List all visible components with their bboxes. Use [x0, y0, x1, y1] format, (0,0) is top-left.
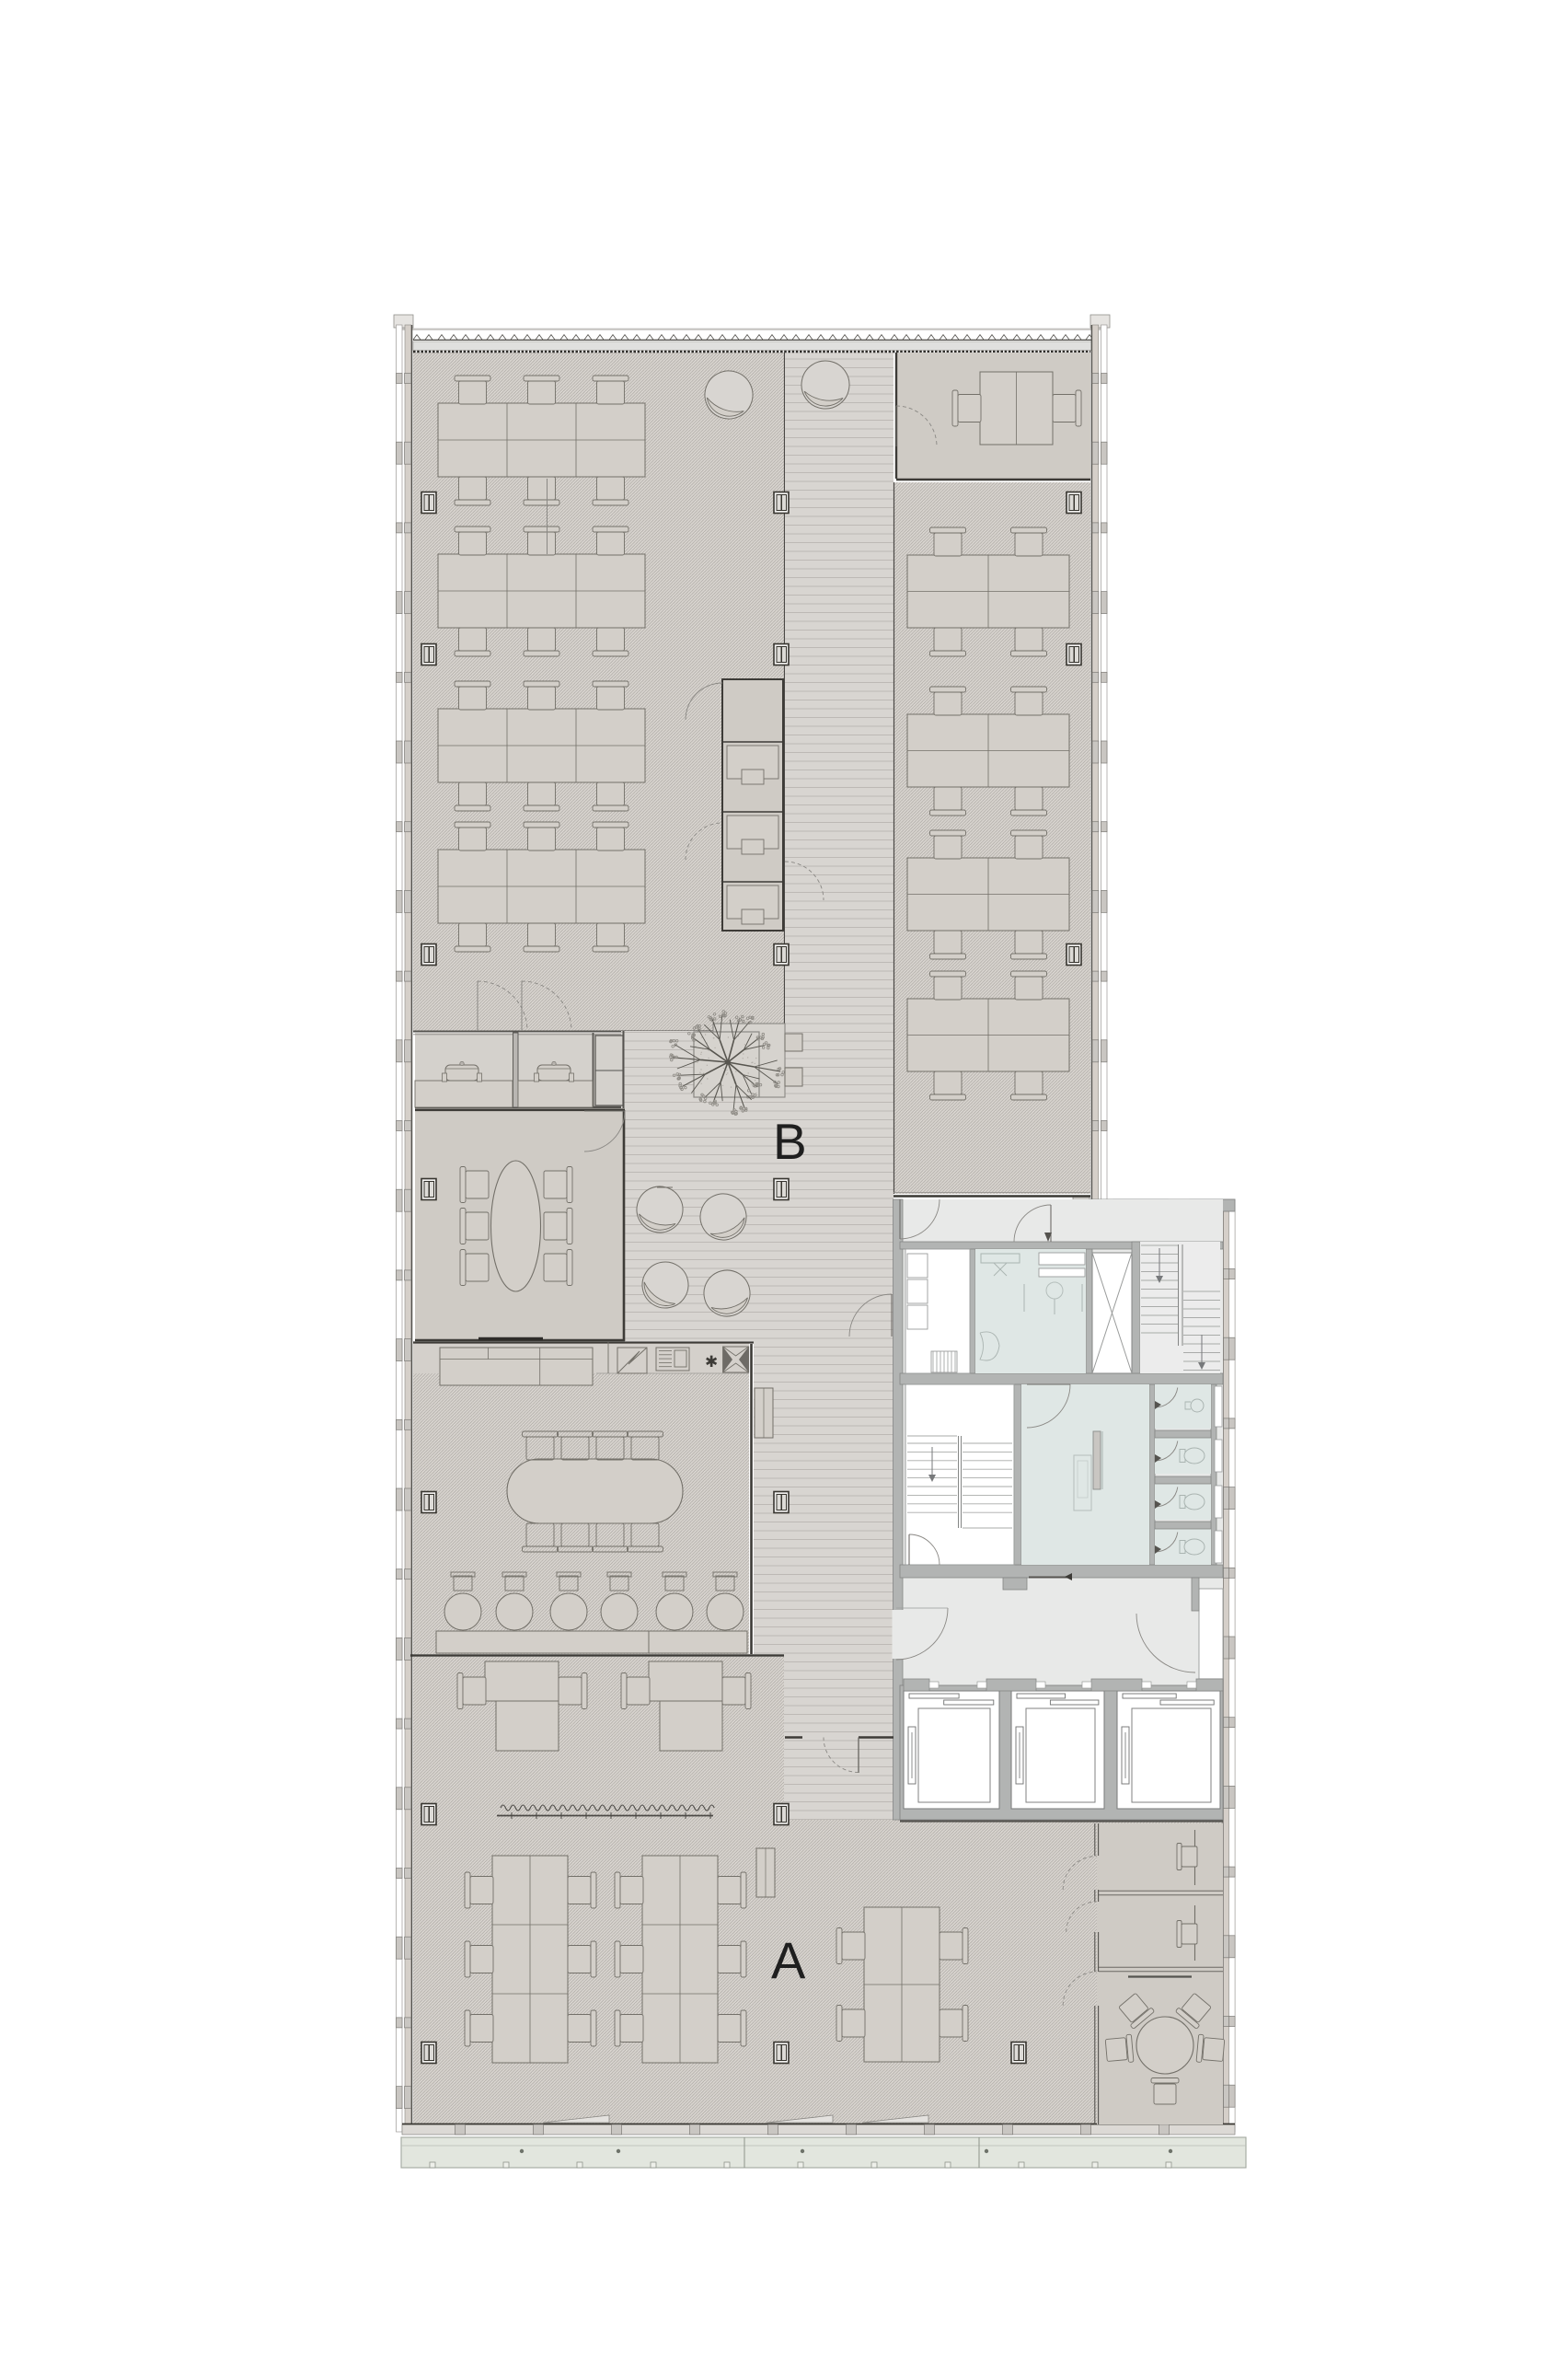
- svg-text:A: A: [771, 1931, 806, 1989]
- svg-text:B: B: [773, 1113, 807, 1170]
- svg-text:✱: ✱: [705, 1353, 718, 1371]
